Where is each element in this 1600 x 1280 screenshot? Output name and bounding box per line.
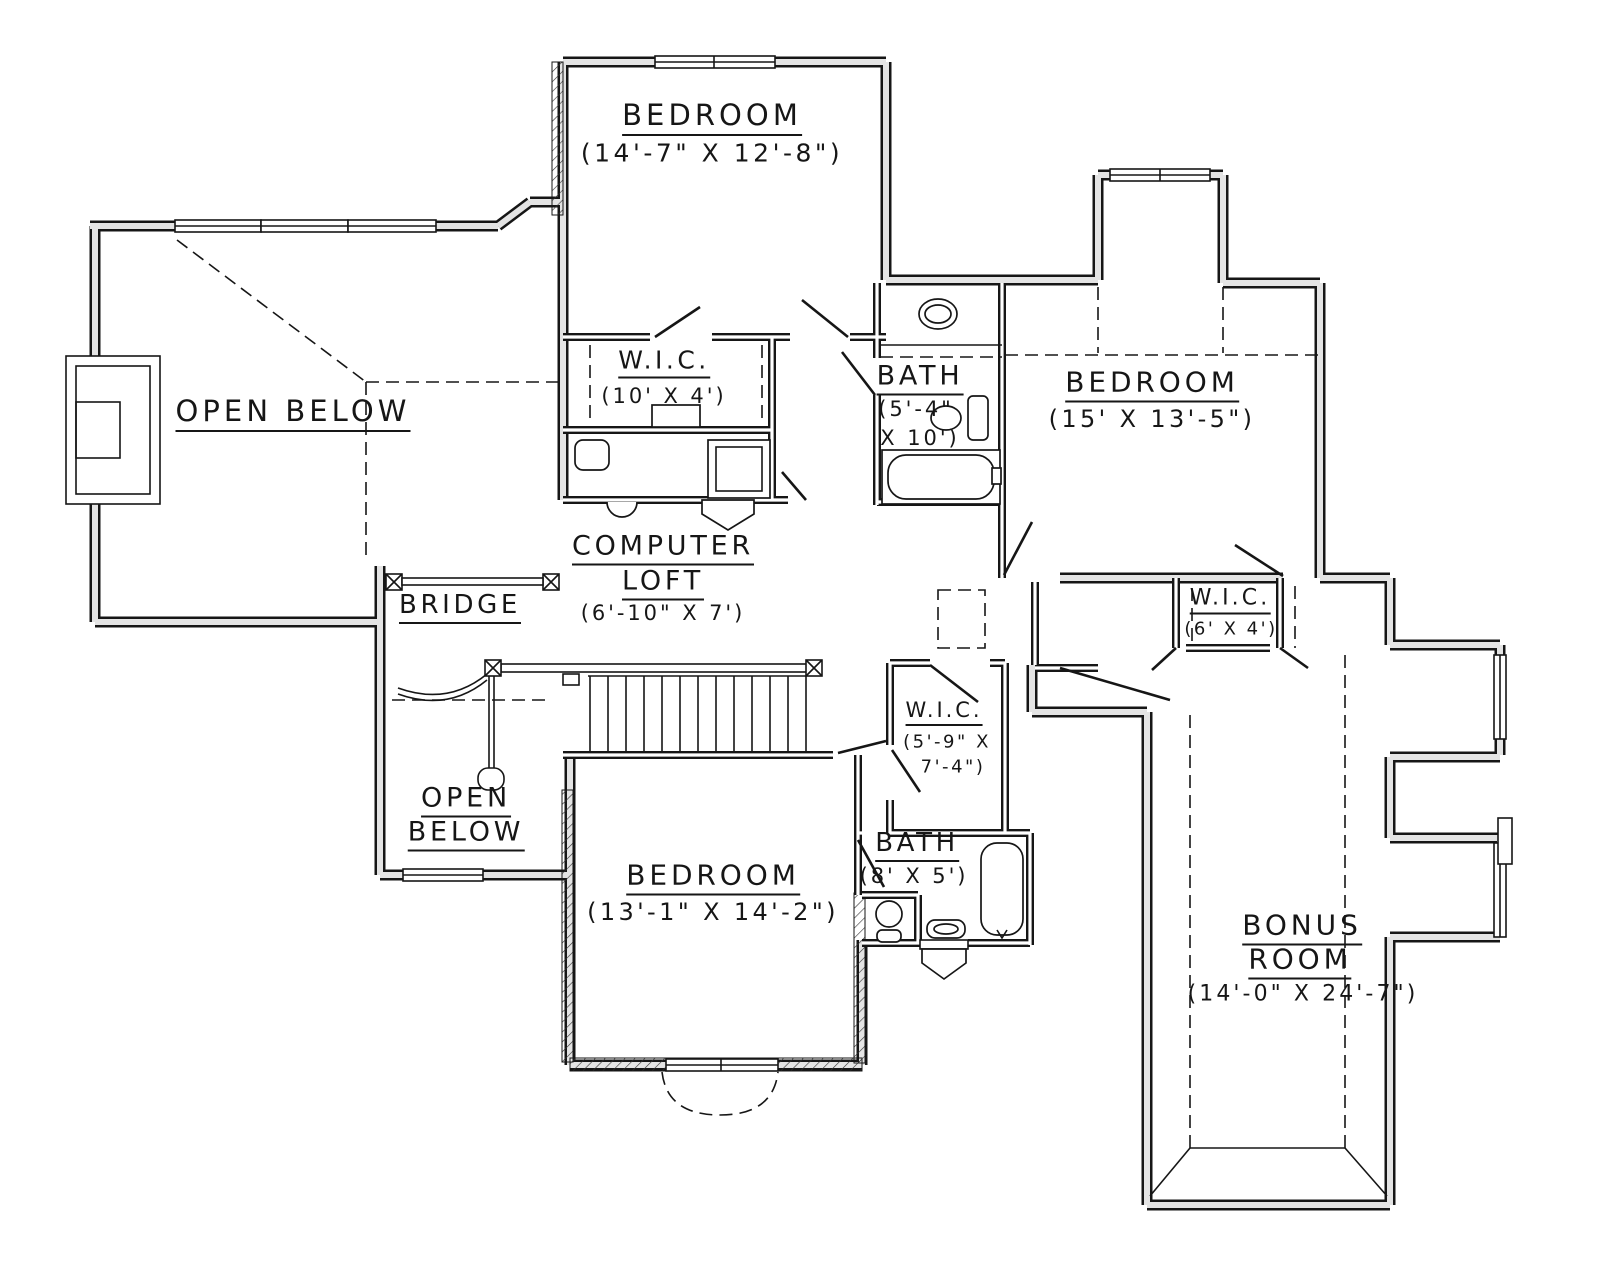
room-label-bedroom-top: BEDROOM: [622, 98, 802, 136]
door-bath-top: [842, 352, 875, 395]
window-top-bedroom: [655, 56, 775, 68]
window-bath-bottom: [920, 940, 968, 949]
room-label-bonus-room-1: BONUS: [1242, 909, 1362, 946]
vanity-fixture: [575, 440, 609, 470]
door-swing-bath-bottom: [922, 949, 966, 979]
room-label-bedroom-bottom: BEDROOM: [626, 859, 800, 896]
stair-top-rail: [501, 664, 808, 672]
room-dims-wic-middle-1: (5'-9" X: [903, 732, 991, 753]
floor-plan-page: BEDROOM (14'-7" X 12'-8") OPEN BELOW W.I…: [0, 0, 1600, 1280]
shower: [708, 440, 770, 498]
room-label-open-below-bottom-2: BELOW: [408, 817, 525, 852]
room-label-computer-loft-1: COMPUTER: [572, 531, 754, 566]
door-swing-vanity: [702, 500, 754, 530]
window-dormer: [1110, 169, 1210, 181]
room-dims-bath-top-2: X 10'): [880, 426, 959, 450]
fireplace: [66, 356, 160, 504]
door-bedroom-top: [802, 300, 848, 337]
door-wic-right-b: [1280, 648, 1308, 668]
room-dims-bedroom-bottom: (13'-1" X 14'-2"): [587, 898, 839, 926]
bridge-rail: [402, 578, 543, 585]
bonus-hip-line: [1345, 1148, 1387, 1196]
window-bottom-bedroom: [666, 1059, 778, 1071]
closet-shelf: [652, 405, 700, 427]
toilet-tank: [968, 396, 988, 440]
room-label-wic-middle: W.I.C.: [906, 698, 983, 726]
room-label-computer-loft-2: LOFT: [622, 566, 704, 601]
toilet-bowl: [876, 901, 902, 927]
room-dims-wic-middle-2: 7'-4"): [921, 757, 986, 778]
door-bedroom-right-b: [1235, 545, 1283, 576]
room-label-bridge: BRIDGE: [399, 590, 521, 624]
door-wic-middle-side: [892, 750, 920, 792]
window-bonus-small: [1498, 818, 1512, 864]
room-dims-bath-top-1: (5'-4": [878, 397, 954, 421]
toilet-seat: [877, 930, 901, 942]
attic-access: [938, 590, 985, 648]
room-label-bonus-room-2: ROOM: [1248, 943, 1351, 980]
x-post: [806, 660, 822, 676]
door-bedroom-right-a: [1004, 522, 1032, 575]
door-bedroom-bottom: [838, 741, 886, 753]
door-wic-top: [655, 307, 700, 337]
stair-side-rail: [489, 676, 494, 768]
room-dims-bonus-room: (14'-0" X 24'-7"): [1188, 982, 1419, 1007]
room-label-open-below-left: OPEN BELOW: [176, 394, 411, 432]
curved-rail: [398, 674, 487, 694]
door-wic-middle-top: [930, 665, 978, 702]
room-label-bath-bottom: BATH: [875, 828, 959, 862]
door-hall-loft: [782, 472, 806, 500]
door-wic-right-a: [1152, 648, 1176, 670]
room-dims-computer-loft: (6'-10" X 7'): [581, 601, 746, 625]
room-label-bedroom-right: BEDROOM: [1065, 366, 1239, 403]
exterior-walls: [90, 62, 1500, 1205]
bonus-hip-line: [1150, 1148, 1190, 1196]
x-post: [485, 660, 501, 676]
door-bonus-room: [1060, 668, 1170, 700]
windows-open-below-left: [175, 220, 436, 232]
floor-plan-drawing: [0, 0, 1600, 1280]
room-label-wic-top: W.I.C.: [618, 346, 710, 379]
room-label-bath-top: BATH: [877, 361, 964, 396]
x-post: [386, 574, 402, 590]
room-dims-wic-right: (6' X 4'): [1184, 619, 1277, 640]
room-dims-bedroom-top: (14'-7" X 12'-8"): [581, 139, 843, 168]
room-label-open-below-bottom-1: OPEN: [421, 783, 511, 818]
stair-treads: [590, 676, 806, 752]
window-bonus-upper: [1494, 655, 1506, 739]
room-dims-bedroom-right: (15' X 13'-5"): [1049, 405, 1256, 433]
window-open-below-bottom: [403, 869, 483, 881]
room-label-wic-right: W.I.C.: [1190, 586, 1271, 615]
room-dims-wic-top: (10' X 4'): [601, 384, 726, 408]
x-post: [543, 574, 559, 590]
bay-arch: [662, 1072, 778, 1115]
sink-half-round: [607, 502, 637, 517]
room-dims-bath-bottom: (8' X 5'): [860, 864, 969, 888]
tub: [981, 843, 1023, 935]
tub-faucet: [992, 468, 1001, 484]
